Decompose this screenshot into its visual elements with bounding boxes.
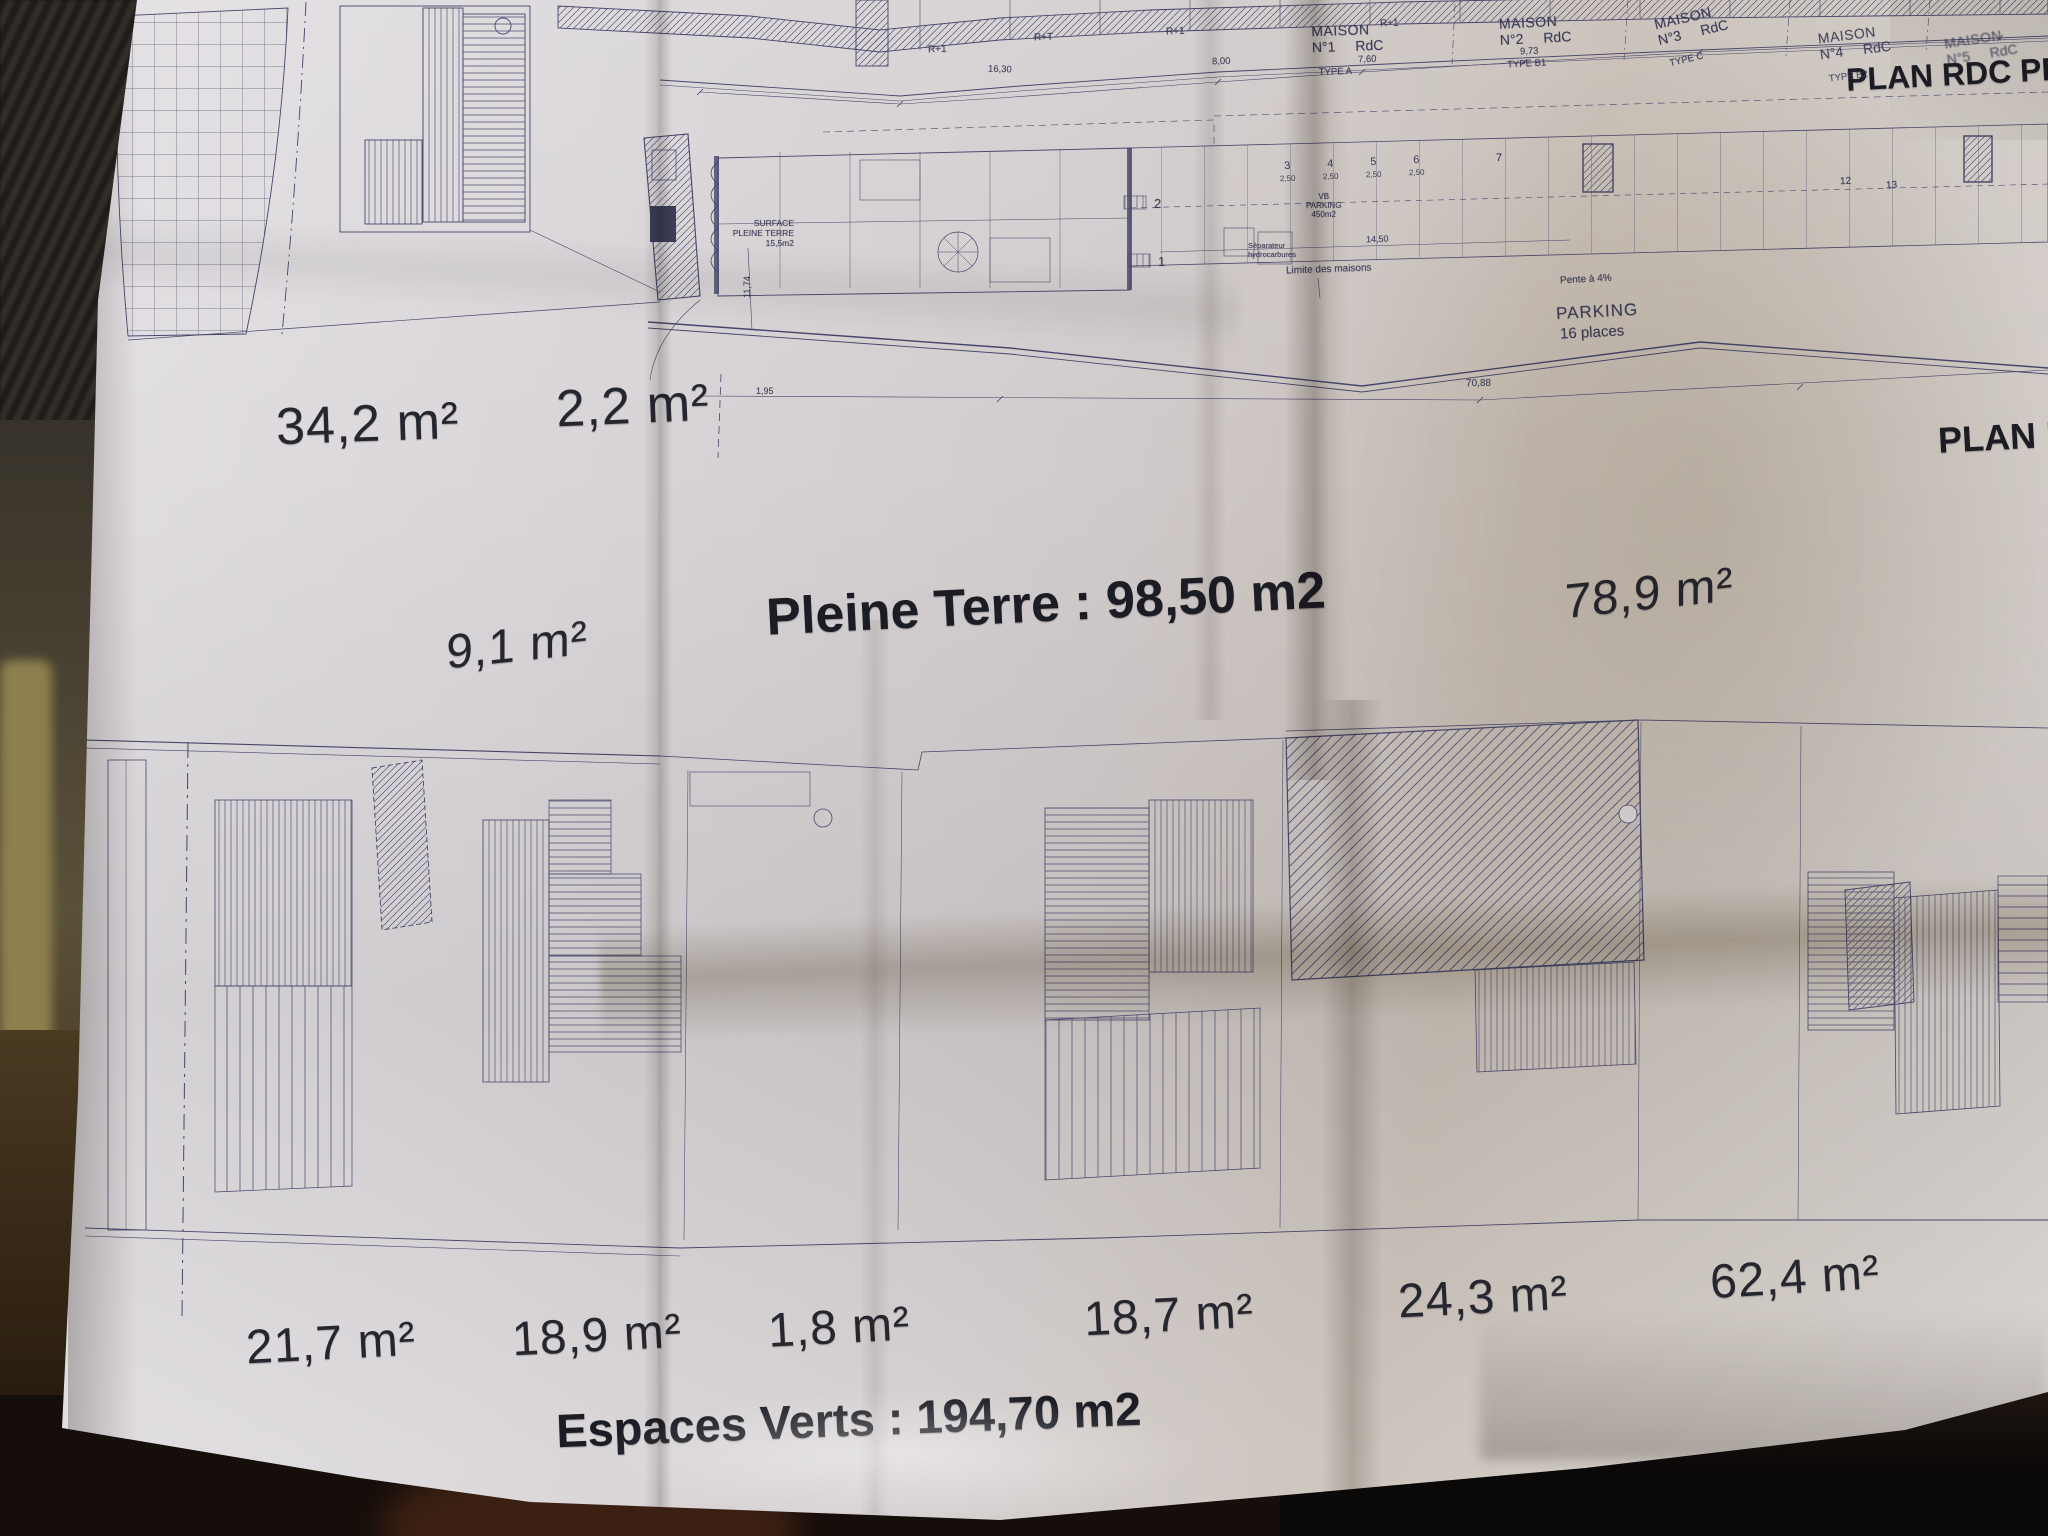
house-floor: RdC: [1862, 38, 1892, 57]
parking-places: 16 places: [1560, 322, 1625, 342]
paper-glare: [600, 1390, 1200, 1520]
stall-width: 2,50: [1266, 173, 1309, 183]
stall-width: 2,50: [1395, 167, 1438, 177]
stall-number: 13: [1886, 180, 1898, 192]
top-left-block: [116, 2, 660, 340]
photo-of-architectural-plan: 34,2 m² 2,2 m² 9,1 m² Pleine Terre : 98,…: [0, 0, 2048, 1536]
house-number: N°5: [1946, 48, 1972, 67]
parking-stall: 4 2,50: [1309, 157, 1353, 181]
plan-paper-sheet: 34,2 m² 2,2 m² 9,1 m² Pleine Terre : 98,…: [0, 0, 2048, 1536]
dimension: 1,95: [756, 386, 774, 396]
house-number: N°4: [1819, 44, 1844, 63]
dimension-vertical: 11,74: [742, 276, 752, 298]
dimension: 14,50: [1366, 234, 1389, 245]
house-floor: RdC: [1988, 40, 2018, 60]
house-number: N°1: [1312, 38, 1336, 55]
parking-area-note: VB PARKING 450m2: [1306, 192, 1341, 219]
house-block-1: MAISON N°1RdC TYPE A: [1311, 21, 1384, 78]
level-tag: R+1: [928, 44, 947, 56]
level-tag: R+T: [1034, 32, 1054, 44]
house-floor: RdC: [1355, 37, 1384, 54]
parking-stall: 5 2,50: [1352, 155, 1396, 179]
stall-number: 6: [1395, 153, 1438, 166]
dimension: 8,00: [1212, 56, 1231, 68]
level-tag: R+1: [1166, 26, 1185, 38]
unit-number: 2: [1154, 196, 1161, 211]
stall-number: 4: [1309, 157, 1352, 170]
parking-stall: 3 2,50: [1266, 159, 1310, 183]
house-block-2: MAISON N°2RdC TYPE B1: [1499, 12, 1573, 71]
house-width-dim: 7,60: [1358, 54, 1377, 66]
sheet-title-r-moins-1: PLAN R-: [1937, 412, 2048, 462]
stall-number: 12: [1840, 176, 1852, 188]
stall-number: 5: [1352, 155, 1395, 168]
parking-stall: 6 2,50: [1395, 153, 1439, 177]
area-label: 24,3 m²: [1397, 1266, 1569, 1330]
stall-number: 7: [1496, 152, 1502, 164]
area-label: 18,9 m²: [511, 1304, 683, 1368]
dimension: 70,88: [1466, 378, 1491, 389]
cushion-edge: [0, 660, 52, 1060]
house-block-4: MAISON N°4RdC TYPE B2: [1817, 22, 1895, 85]
separateur-note: Séparateur hydrocarbures: [1248, 242, 1296, 259]
surface-pleine-terre-note: SURFACE PLEINE TERRE 15,5m2: [694, 218, 794, 248]
area-label: 2,2 m²: [555, 373, 711, 440]
garden-plots: [85, 720, 2048, 1318]
area-label: 62,4 m²: [1708, 1245, 1881, 1310]
house-number: N°2: [1499, 31, 1523, 48]
dimension: 16,30: [988, 64, 1012, 76]
stall-width: 2,50: [1352, 169, 1395, 179]
stall-width: 2,50: [1309, 171, 1352, 181]
area-label: 18,7 m²: [1083, 1284, 1255, 1348]
house-floor: RdC: [1543, 28, 1572, 45]
level-tag: R+1: [1380, 18, 1399, 30]
area-label: 34,2 m²: [275, 391, 460, 457]
unit-number: 1: [1158, 254, 1165, 269]
parking-title: PARKING: [1556, 300, 1639, 324]
stall-number: 3: [1266, 159, 1309, 172]
area-label: 21,7 m²: [245, 1312, 417, 1376]
area-label: 1,8 m²: [767, 1296, 912, 1358]
building-and-parking: [644, 92, 2048, 458]
house-type: TYPE A: [1319, 65, 1385, 78]
house-width-dim: 9,73: [1520, 46, 1539, 58]
